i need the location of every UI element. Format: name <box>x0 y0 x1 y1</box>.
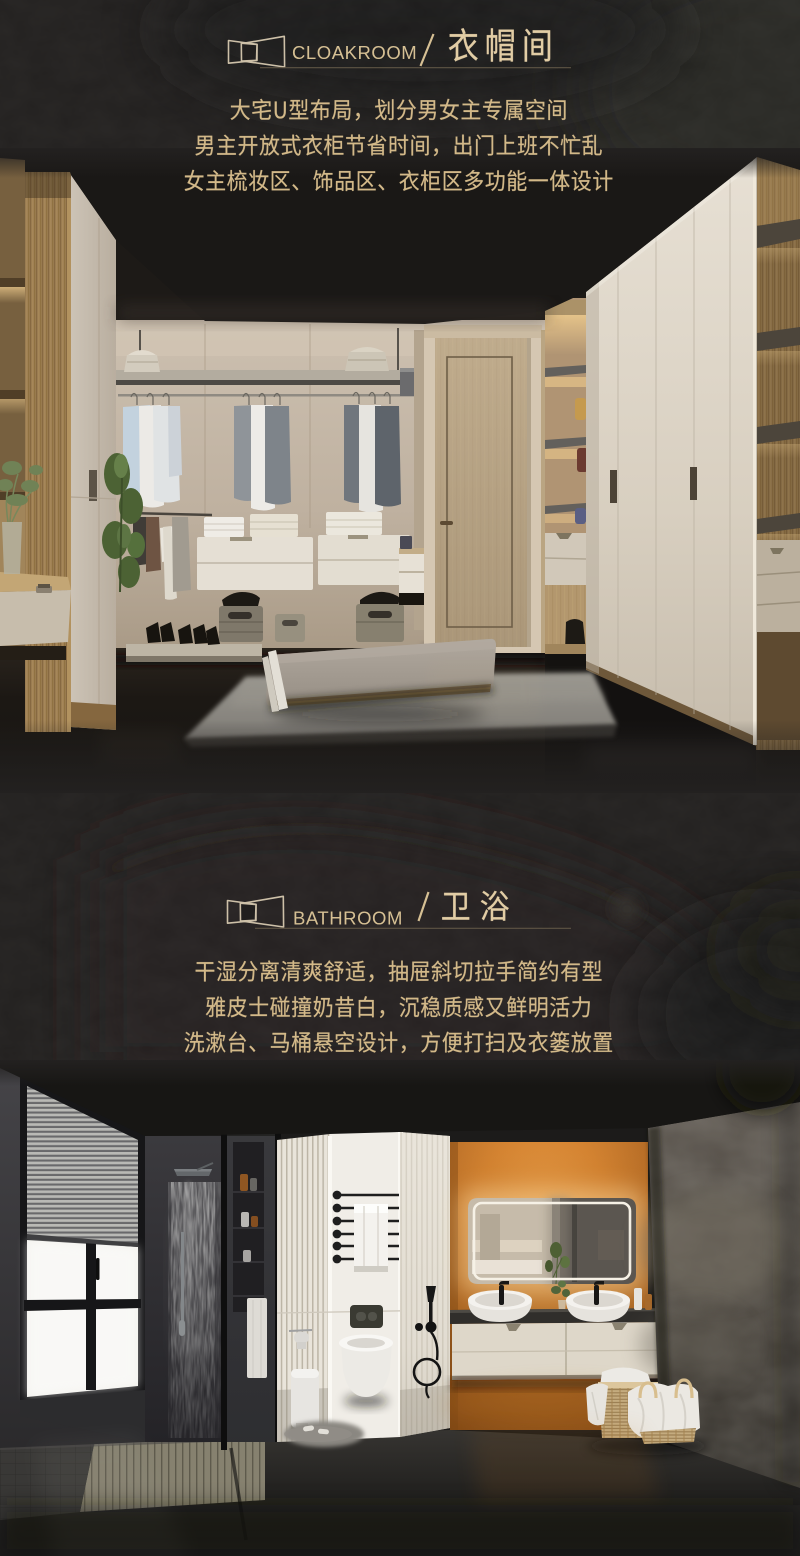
svg-text:CLOAKROOM: CLOAKROOM <box>292 42 417 63</box>
svg-text:BATHROOM: BATHROOM <box>293 908 403 929</box>
